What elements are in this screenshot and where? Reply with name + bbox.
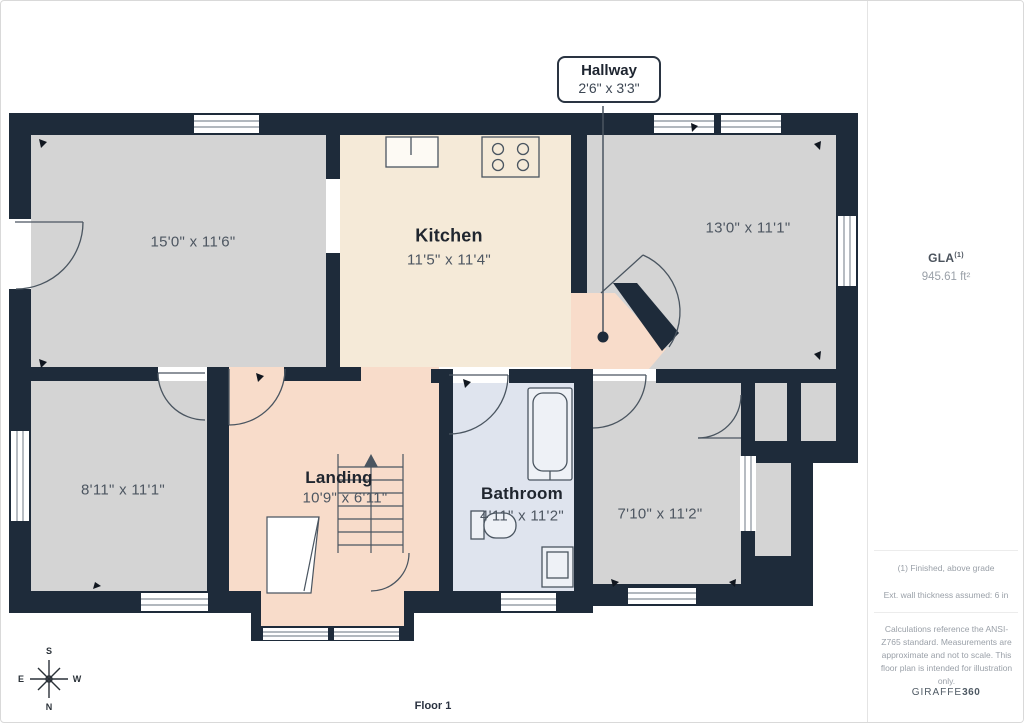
hallway-callout: Hallway 2'6" x 3'3" xyxy=(557,56,661,103)
room-bottom-left-dims: 8'11" x 11'1" xyxy=(81,482,165,499)
room-top-left-fill xyxy=(31,135,326,367)
stove-icon xyxy=(482,137,539,177)
window xyxy=(838,216,856,286)
window xyxy=(740,456,756,531)
kitchen-name-label: Kitchen xyxy=(415,226,482,247)
compass-right-label: W xyxy=(73,674,82,684)
window xyxy=(263,628,328,640)
window xyxy=(628,588,696,604)
room-top-left-dims: 15'0" x 11'6" xyxy=(150,234,235,251)
kitchen-dims: 11'5" x 11'4" xyxy=(407,252,491,269)
window xyxy=(334,628,399,640)
bathroom-name-label: Bathroom xyxy=(481,484,563,504)
window xyxy=(721,115,781,133)
window xyxy=(501,593,556,611)
compass-bottom-label: N xyxy=(46,702,53,712)
sidebar-footnote-1: (1) Finished, above grade xyxy=(868,563,1024,573)
hallway-callout-title: Hallway xyxy=(563,62,655,79)
gla-label: GLA(1) xyxy=(868,251,1024,265)
window xyxy=(141,593,208,611)
sidebar-footnote-2: Ext. wall thickness assumed: 6 in xyxy=(868,590,1024,600)
window xyxy=(194,115,259,133)
compass-top-label: S xyxy=(46,646,52,656)
room-top-right-dims: 13'0" x 11'1" xyxy=(705,220,790,237)
gla-value: 945.61 ft² xyxy=(868,271,1024,283)
sidebar-divider xyxy=(874,550,1018,551)
closet-b-fill xyxy=(801,383,836,441)
window xyxy=(654,115,714,133)
floorplan-screen: 15'0" x 11'6" Kitchen 11'5" x 11'4" 13'0… xyxy=(0,0,1024,723)
compass-icon: S E W N xyxy=(13,643,85,715)
landing-name-label: Landing xyxy=(305,468,373,488)
info-sidebar: GLA(1) 945.61 ft² (1) Finished, above gr… xyxy=(867,1,1024,723)
kitchen-sink-icon xyxy=(386,137,438,167)
gla-superscript: (1) xyxy=(954,252,963,259)
compass-left-label: E xyxy=(18,674,24,684)
room-bottom-right-dims: 7'10" x 11'2" xyxy=(617,506,702,523)
sidebar-divider xyxy=(874,612,1018,613)
closet-a-fill xyxy=(755,383,787,441)
bathtub-icon xyxy=(528,388,572,480)
sidebar-disclaimer: Calculations reference the ANSI-Z765 sta… xyxy=(880,623,1013,688)
bathroom-dims: 4'11" x 11'2" xyxy=(480,508,564,525)
window xyxy=(11,431,29,521)
closet-c-fill xyxy=(755,463,791,556)
hallway-dot xyxy=(598,332,609,343)
gla-block: GLA(1) 945.61 ft² xyxy=(868,251,1024,283)
floor-label: Floor 1 xyxy=(415,700,452,712)
landing-dims: 10'9" x 6'11" xyxy=(302,490,387,507)
hallway-callout-dims: 2'6" x 3'3" xyxy=(563,80,655,96)
room-bottom-right-fill xyxy=(593,381,741,584)
bathroom-sink-icon xyxy=(542,547,573,587)
brand-logo: GIRAFFE360 xyxy=(868,687,1024,698)
